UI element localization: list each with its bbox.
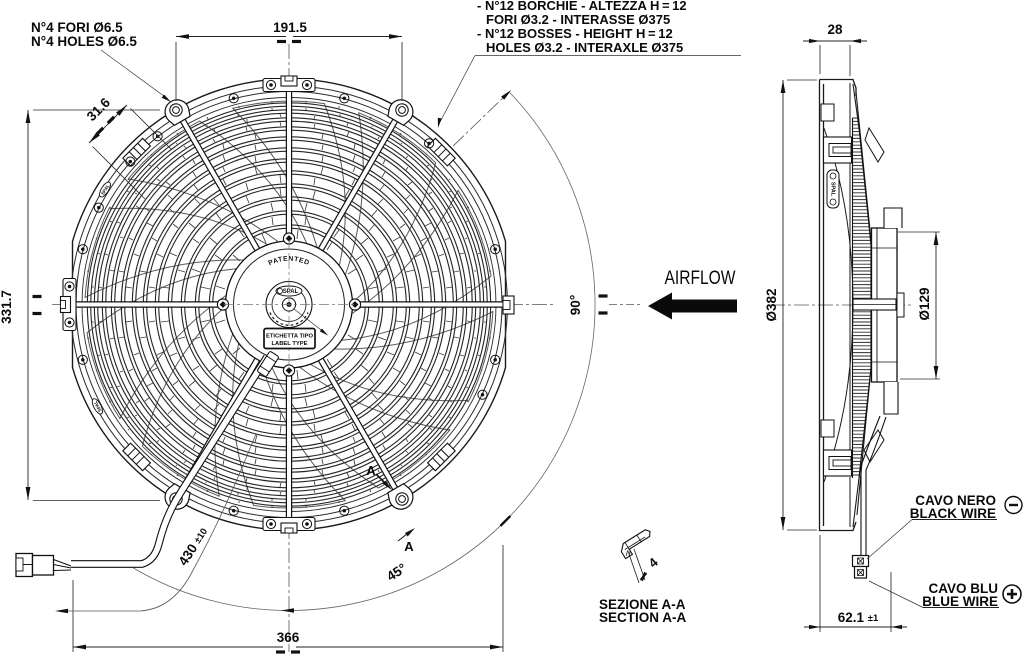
svg-text:A: A [366, 463, 376, 478]
svg-text:SPAL: SPAL [283, 289, 299, 295]
svg-text:A: A [404, 539, 414, 554]
svg-text:- N°12 BOSSES - HEIGHT H = 12: - N°12 BOSSES - HEIGHT H = 12 [477, 26, 673, 41]
svg-text:FORI Ø3.2 - INTERASSE Ø375: FORI Ø3.2 - INTERASSE Ø375 [486, 12, 670, 27]
svg-text:SECTION A-A: SECTION A-A [599, 610, 686, 625]
svg-text:62.1 ±1: 62.1 ±1 [838, 610, 879, 625]
svg-text:N°4 HOLES Ø6.5: N°4 HOLES Ø6.5 [31, 34, 137, 49]
svg-text:BLUE WIRE: BLUE WIRE [922, 594, 998, 609]
svg-text:191.5: 191.5 [273, 20, 307, 35]
svg-text:LABEL TYPE: LABEL TYPE [272, 341, 308, 347]
svg-text:SPAL: SPAL [830, 182, 836, 197]
svg-text:Ø382: Ø382 [764, 288, 779, 321]
svg-text:Ø129: Ø129 [917, 287, 932, 320]
svg-text:366: 366 [277, 630, 300, 645]
svg-text:HOLES Ø3.2 - INTERAXLE Ø375: HOLES Ø3.2 - INTERAXLE Ø375 [486, 40, 683, 55]
svg-text:BLACK WIRE: BLACK WIRE [910, 506, 996, 521]
svg-text:28: 28 [827, 22, 843, 37]
svg-text:331.7: 331.7 [0, 290, 14, 324]
svg-text:N°4 FORI Ø6.5: N°4 FORI Ø6.5 [31, 20, 123, 35]
svg-text:AIRFLOW: AIRFLOW [664, 266, 735, 288]
svg-text:ETICHETTA TIPO: ETICHETTA TIPO [266, 334, 314, 340]
svg-text:90°: 90° [568, 295, 583, 315]
